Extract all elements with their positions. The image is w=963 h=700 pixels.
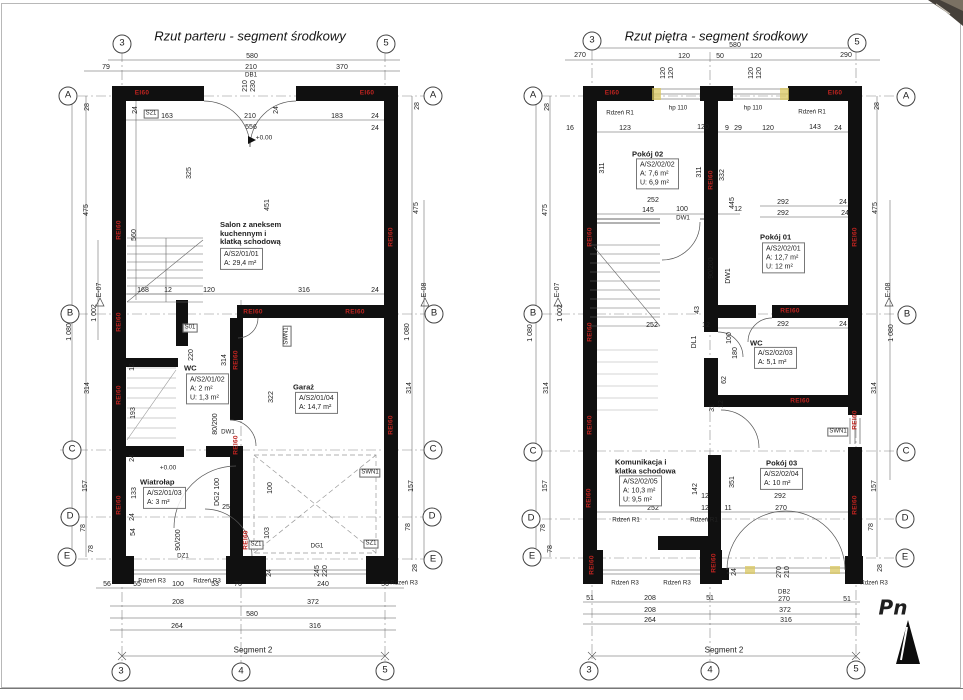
fire-rating-label: REI60 xyxy=(780,307,800,314)
element-tag: Rdzeń R3 xyxy=(193,577,221,584)
grid-bubble: D xyxy=(896,510,915,529)
dim-label: 24 xyxy=(129,513,137,521)
element-tag: S01 xyxy=(183,324,198,333)
dim-label: 240 xyxy=(317,581,329,589)
dim-label: 100 xyxy=(676,206,688,214)
dim-label: 245 xyxy=(314,565,322,577)
dim-label: 210 xyxy=(784,566,792,578)
dim-label: 314 xyxy=(84,382,92,394)
element-tag: DB2 xyxy=(778,588,790,595)
dim-label: 24 xyxy=(839,321,847,329)
dim-label: 580 xyxy=(246,611,258,619)
grid-bubble: B xyxy=(425,305,444,324)
element-tag: DW1 xyxy=(676,214,690,221)
room-info-box: A/S2/02/04 A: 10 m² xyxy=(760,468,803,490)
fire-rating-label: REI60 xyxy=(851,227,858,247)
grid-bubble: E xyxy=(424,551,443,570)
dim-label: 475 xyxy=(872,202,880,214)
grid-bubble: D xyxy=(522,510,541,529)
grid-bubble: 3 xyxy=(112,663,131,682)
dim-label: 451 xyxy=(264,199,272,211)
dim-label: 1 002 xyxy=(557,304,565,322)
dim-label: 24 xyxy=(371,287,379,295)
grid-bubble: 5 xyxy=(848,34,867,53)
dim-label: 103 xyxy=(264,527,272,539)
fire-rating-label: EI60 xyxy=(135,89,150,96)
dim-label: 210 xyxy=(244,113,256,121)
dim-label: 80/200 xyxy=(212,413,220,434)
dim-label: 28 xyxy=(84,103,92,111)
grid-bubble: A xyxy=(524,87,543,106)
grid-bubble: B xyxy=(524,305,543,324)
dim-label: 24 xyxy=(132,106,140,114)
dim-label: 133 xyxy=(131,487,139,499)
dim-label: 51 xyxy=(706,595,714,603)
dim-label: 24 xyxy=(129,454,137,462)
room-info-box: A/S2/02/05 A: 10,3 m² U: 9,5 m² xyxy=(619,475,662,506)
dim-label: 56 xyxy=(381,581,389,589)
grid-bubble: E xyxy=(58,548,77,567)
dim-label: 316 xyxy=(780,617,792,625)
dim-label: 314 xyxy=(871,382,879,394)
dim-label: 24 xyxy=(834,125,842,133)
dim-label: 120 xyxy=(668,67,676,79)
dim-label: E-08 xyxy=(885,283,893,298)
grid-bubble: D xyxy=(61,508,80,527)
dim-label: 78 xyxy=(405,523,413,531)
dim-label: 208 xyxy=(644,595,656,603)
dim-label: 28 xyxy=(877,564,885,572)
grid-bubble: C xyxy=(63,441,82,460)
dim-label: 270 xyxy=(778,596,790,604)
dim-label: 78 xyxy=(540,524,548,532)
dim-label: 220 xyxy=(322,565,330,577)
dim-label: 183 xyxy=(331,113,343,121)
dim-label: 78 xyxy=(80,524,88,532)
element-tag: Rdzeń R1 xyxy=(612,516,640,523)
dim-label: 1 080 xyxy=(888,324,896,342)
dim-label: 120 xyxy=(750,53,762,61)
dim-label: E-07 xyxy=(96,283,104,298)
dim-label: 322 xyxy=(268,391,276,403)
dim-label: 43 xyxy=(694,306,702,314)
room-info-box: A/S2/01/02 A: 2 m² U: 1,3 m² xyxy=(186,373,229,404)
element-tag: Rdzeń R3 xyxy=(138,577,166,584)
dim-label: 290 xyxy=(840,52,852,60)
dim-label: 9 xyxy=(725,125,729,133)
grid-bubble: D xyxy=(423,508,442,527)
dim-label: 51 xyxy=(586,595,594,603)
dim-label: 264 xyxy=(171,623,183,631)
dim-label: 28 xyxy=(544,103,552,111)
dim-label: 252 xyxy=(647,197,659,205)
element-tag: Rdzeń R3 xyxy=(390,579,418,586)
dim-label: 12 xyxy=(734,206,742,214)
dim-label: 292 xyxy=(774,493,786,501)
dim-label: DG2 100 xyxy=(214,478,222,506)
dim-label: 208 xyxy=(172,599,184,607)
fire-rating-label: REI60 xyxy=(588,555,595,575)
fire-rating-label: REI60 xyxy=(387,227,394,247)
fire-rating-label: REI60 xyxy=(790,397,810,404)
dim-label: 12 xyxy=(701,505,709,513)
dim-label: 180 xyxy=(732,347,740,359)
dim-label: 143 xyxy=(809,124,821,132)
dim-label: 311 xyxy=(696,166,704,177)
dim-label: 208 xyxy=(644,607,656,615)
fire-rating-label: REI60 xyxy=(115,312,122,332)
dim-label: 11 xyxy=(724,505,731,513)
fire-rating-label: REI60 xyxy=(851,495,858,515)
room-name: Salon z aneksem kuchennym i klatką schod… xyxy=(220,221,281,247)
dim-label: 1 080 xyxy=(404,323,412,341)
dim-label: 78 xyxy=(547,545,555,553)
fire-rating-label: REI60 xyxy=(242,530,249,550)
dim-label: 50 xyxy=(716,53,724,61)
dim-label: 264 xyxy=(644,617,656,625)
level-label: +0.00 xyxy=(160,464,176,471)
element-tag: Rdzeń R1 xyxy=(606,109,634,116)
north-label: Pn xyxy=(879,597,908,620)
fire-rating-label: REI60 xyxy=(586,415,593,435)
room-info-box: A/S2/02/02 A: 7,6 m² U: 6,9 m² xyxy=(636,158,679,189)
dim-label: 193 xyxy=(130,407,138,419)
fire-rating-label: REI60 xyxy=(851,410,858,430)
dim-label: 16 xyxy=(566,125,574,133)
dim-label: 370 xyxy=(336,64,348,72)
dim-label: 314 xyxy=(406,382,414,394)
grid-bubble: 3 xyxy=(583,32,602,51)
grid-bubble: 5 xyxy=(377,35,396,54)
dim-label: 24 xyxy=(371,125,379,133)
dim-label: 372 xyxy=(779,607,791,615)
dim-label: 120 xyxy=(203,287,215,295)
dim-label: 1 080 xyxy=(527,324,535,342)
fire-rating-label: REI60 xyxy=(586,227,593,247)
dim-label: 120 xyxy=(678,53,690,61)
element-tag: Rdzeń R1 xyxy=(798,108,826,115)
dim-label: 157 xyxy=(871,480,879,492)
dim-label: 372 xyxy=(307,599,319,607)
room-name: WC xyxy=(184,365,197,374)
dim-label: 12 xyxy=(164,287,172,295)
dim-label: 556 xyxy=(245,124,257,132)
grid-bubble: 5 xyxy=(376,662,395,681)
dim-label: 28 xyxy=(414,102,422,110)
element-tag: DG1 xyxy=(311,542,324,549)
grid-bubble: 3 xyxy=(113,35,132,54)
dim-label: 316 xyxy=(309,623,321,631)
fire-rating-label: REI60 xyxy=(232,435,239,455)
dim-label: 100 xyxy=(267,482,275,494)
level-label: +0.00 xyxy=(256,134,272,141)
element-tag: SWN1 xyxy=(359,469,380,478)
dim-label: 292 xyxy=(777,199,789,207)
element-tag: DZ1 xyxy=(177,552,189,559)
grid-bubble: E xyxy=(896,549,915,568)
grid-bubble: C xyxy=(897,443,916,462)
dim-label: 230 xyxy=(250,80,258,92)
dim-label: 210 xyxy=(242,80,250,92)
dim-label: 351 xyxy=(729,476,737,488)
fire-rating-label: REI60 xyxy=(243,308,263,315)
element-tag: SZ1 xyxy=(248,541,263,550)
dim-label: 24 xyxy=(273,106,281,114)
dim-label: 157 xyxy=(542,480,550,492)
element-tag: Rdzeń R3 xyxy=(860,579,888,586)
dim-label: 475 xyxy=(413,202,421,214)
fire-rating-label: REI60 xyxy=(232,350,239,370)
dim-label: 142 xyxy=(692,483,700,495)
fire-rating-label: REI60 xyxy=(710,553,717,573)
dim-label: 56 xyxy=(103,581,111,589)
dim-label: 12 xyxy=(701,493,709,501)
fire-rating-label: REI60 xyxy=(585,488,592,508)
dim-label: 76 xyxy=(234,581,242,589)
dim-label: 314 xyxy=(543,382,551,394)
dim-label: 51 xyxy=(843,596,851,604)
dim-label: 325 xyxy=(186,167,194,179)
fire-rating-label: REI60 xyxy=(115,495,122,515)
fire-rating-label: REI60 xyxy=(707,170,714,190)
grid-bubble: E xyxy=(523,548,542,567)
dim-label: E-08 xyxy=(421,283,429,298)
dim-label: 292 xyxy=(777,210,789,218)
dim-label: 79 xyxy=(102,64,110,72)
dim-label: 123 xyxy=(619,125,631,133)
dim-label: 332 xyxy=(719,169,727,181)
room-info-box: A/S2/02/03 A: 5,1 m² xyxy=(754,347,797,369)
dim-label: DL1 xyxy=(691,336,699,349)
dim-label: 24 xyxy=(731,568,739,576)
dim-label: 12 xyxy=(702,322,710,330)
fire-rating-label: EI60 xyxy=(605,89,620,96)
dim-label: 157 xyxy=(408,480,416,492)
dim-label: 24 xyxy=(266,569,274,577)
dim-label: 24 xyxy=(841,210,849,218)
dim-label: 78 xyxy=(868,523,876,531)
dim-label: 120 xyxy=(756,67,764,79)
dim-label: 120 xyxy=(748,67,756,79)
dim-label: 560 xyxy=(131,229,139,241)
dim-label: 31 xyxy=(709,404,717,412)
dim-label: DW1 xyxy=(725,268,733,284)
grid-bubble: 5 xyxy=(847,661,866,680)
element-tag: Rdzeń R3 xyxy=(663,579,691,586)
dim-label: 252 xyxy=(646,322,658,330)
element-tag: DB1 xyxy=(245,71,257,78)
scanned-floor-plan-page: Rzut parteru - segment środkowy Rzut pię… xyxy=(0,0,963,700)
dim-label: 90/200 xyxy=(708,257,716,278)
room-info-box: A/S2/01/03 A: 3 m² xyxy=(143,487,186,509)
fire-rating-label: EI60 xyxy=(360,89,375,96)
dim-label: 90/200 xyxy=(175,529,183,550)
grid-bubble: 4 xyxy=(701,662,720,681)
dim-label: 270 xyxy=(574,52,586,60)
dim-label: 157 xyxy=(82,480,90,492)
dim-label: 24 xyxy=(371,113,379,121)
dim-label: 270 xyxy=(776,566,784,578)
dim-label: 145 xyxy=(642,207,654,215)
grid-bubble: A xyxy=(424,87,443,106)
dim-label: 475 xyxy=(542,204,550,216)
dim-label: 220 xyxy=(188,349,196,361)
dim-label: 292 xyxy=(777,321,789,329)
dim-label: 311 xyxy=(599,162,607,173)
dim-label: 78 xyxy=(88,545,96,553)
element-tag: SWN1 xyxy=(827,428,848,437)
dim-label: 580 xyxy=(729,42,741,50)
element-tag: Rdzeń R1 xyxy=(690,516,718,523)
dim-label: 120 xyxy=(762,125,774,133)
dim-label: 168 xyxy=(137,287,149,295)
segment-label: Segment 2 xyxy=(705,645,744,654)
grid-bubble: B xyxy=(61,305,80,324)
dim-label: 12 xyxy=(129,363,137,371)
dim-label: 29 xyxy=(734,125,742,133)
fire-rating-label: REI60 xyxy=(115,385,122,405)
dim-label: 580 xyxy=(246,53,258,61)
dim-label: 316 xyxy=(298,287,310,295)
dim-label: 270 xyxy=(775,505,787,513)
room-info-box: A/S2/02/01 A: 12,7 m² U: 12 m² xyxy=(762,242,805,273)
grid-bubble: 4 xyxy=(232,663,251,682)
annotation-layer: 35345ABCDEABCDE58079210DB137021023024S21… xyxy=(0,0,963,700)
room-name: Komunikacja i klatka schodowa xyxy=(615,458,676,475)
fire-rating-label: EI60 xyxy=(828,89,843,96)
dim-label: 120 xyxy=(660,67,668,79)
element-tag: hp 110 xyxy=(744,104,762,111)
element-tag: hp 110 xyxy=(669,104,687,111)
fire-rating-label: REI60 xyxy=(345,308,365,315)
dim-label: 1 080 xyxy=(66,323,74,341)
dim-label: 100 xyxy=(172,581,184,589)
element-tag: SZ1 xyxy=(363,540,378,549)
grid-bubble: C xyxy=(524,443,543,462)
grid-bubble: A xyxy=(897,88,916,107)
room-info-box: A/S2/01/04 A: 14,7 m² xyxy=(295,392,338,414)
grid-bubble: C xyxy=(424,441,443,460)
fire-rating-label: REI60 xyxy=(586,322,593,342)
dim-label: 25 xyxy=(222,504,230,512)
fire-rating-label: REI60 xyxy=(387,415,394,435)
dim-label: 28 xyxy=(874,102,882,110)
element-tag: Rdzeń R3 xyxy=(611,579,639,586)
dim-label: 475 xyxy=(83,204,91,216)
grid-bubble: A xyxy=(59,87,78,106)
fire-rating-label: REI60 xyxy=(115,220,122,240)
grid-bubble: 3 xyxy=(580,662,599,681)
dim-label: E-07 xyxy=(554,283,562,298)
dim-label: 28 xyxy=(412,564,420,572)
dim-label: 100 xyxy=(726,332,734,344)
room-name: Pokój 01 xyxy=(760,234,791,243)
dim-label: 120 xyxy=(697,124,709,132)
element-tag: S21 xyxy=(144,110,159,119)
dim-label: 12 xyxy=(718,400,726,408)
dim-label: 62 xyxy=(721,376,729,384)
grid-bubble: B xyxy=(898,306,917,325)
room-info-box: A/S2/01/01 A: 29,4 m² xyxy=(220,248,263,270)
dim-label: 24 xyxy=(839,199,847,207)
dim-label: 54 xyxy=(130,528,138,536)
element-tag: SWN1 xyxy=(283,325,292,346)
dim-label: 1 002 xyxy=(91,304,99,322)
segment-label: Segment 2 xyxy=(234,645,273,654)
dim-label: 314 xyxy=(221,354,229,366)
dim-label: 163 xyxy=(161,113,173,121)
